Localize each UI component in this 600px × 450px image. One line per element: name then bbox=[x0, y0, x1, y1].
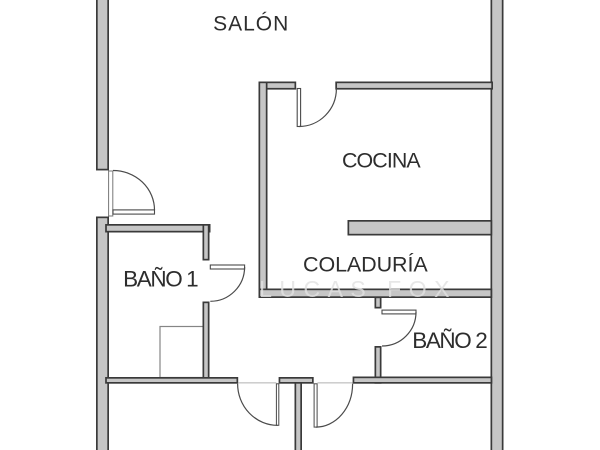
svg-text:BAÑO 1: BAÑO 1 bbox=[123, 267, 198, 292]
svg-text:BAÑO 2: BAÑO 2 bbox=[412, 328, 487, 353]
svg-text:SALÓN: SALÓN bbox=[213, 12, 289, 35]
svg-text:COCINA: COCINA bbox=[342, 148, 421, 172]
svg-text:COLADURÍA: COLADURÍA bbox=[303, 251, 428, 276]
svg-text:LUCAS FOX: LUCAS FOX bbox=[259, 276, 457, 302]
